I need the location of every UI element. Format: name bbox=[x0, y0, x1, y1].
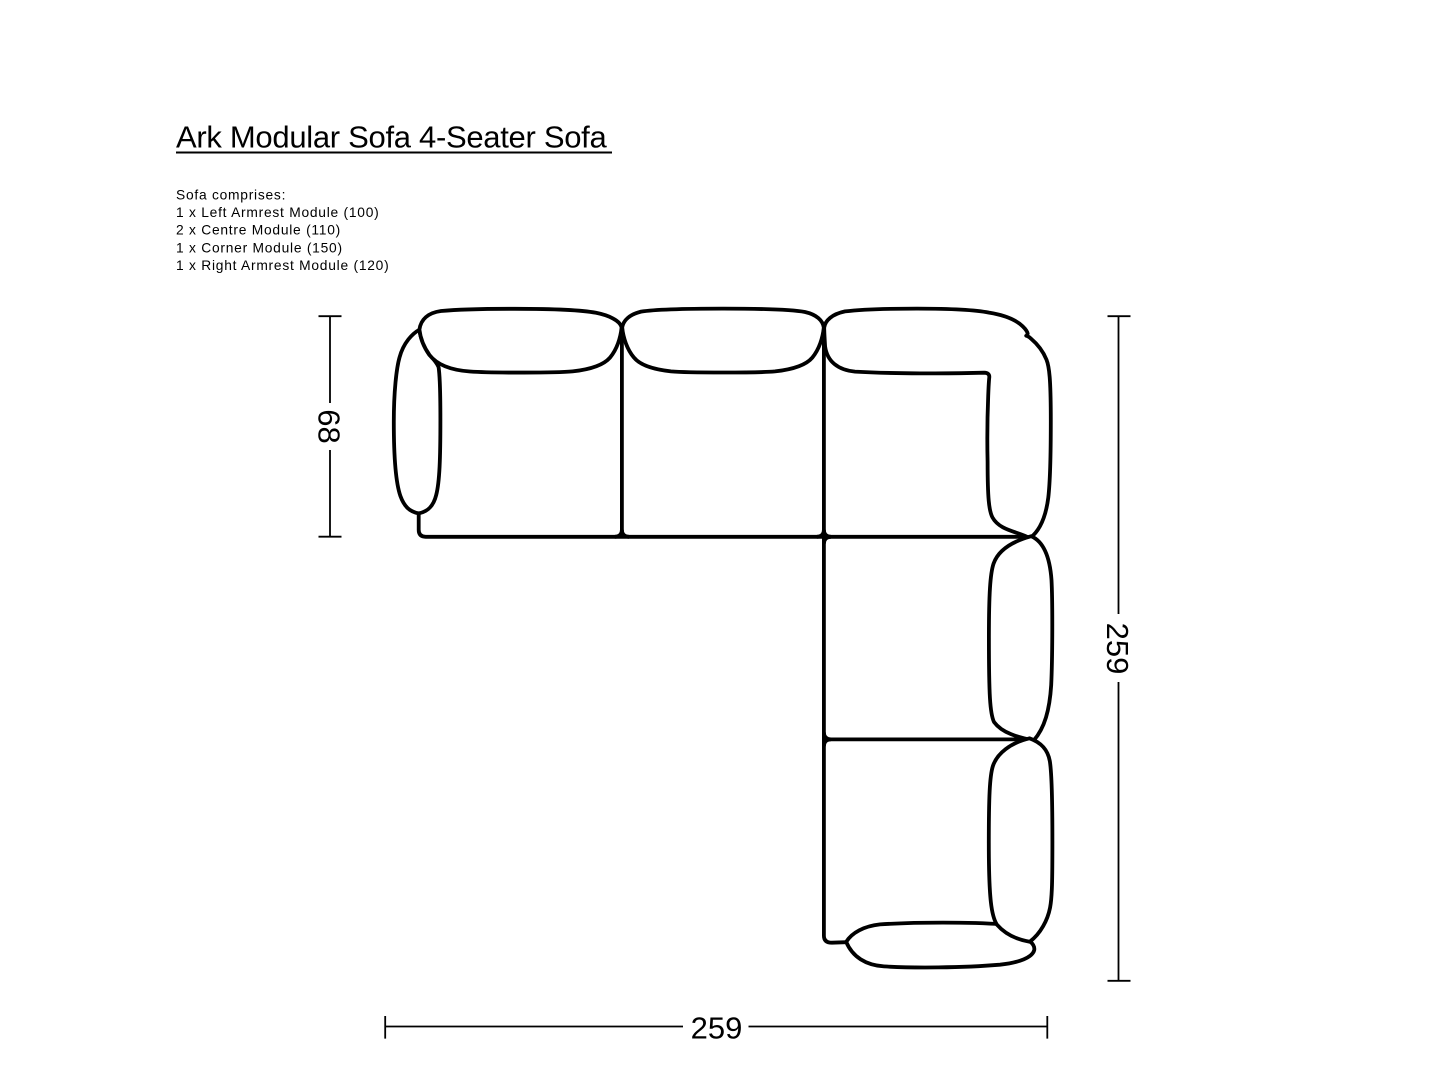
svg-text:1 x Corner Module (150): 1 x Corner Module (150) bbox=[176, 240, 343, 255]
svg-text:259: 259 bbox=[1100, 623, 1135, 675]
svg-text:1 x Left Armrest Module (100): 1 x Left Armrest Module (100) bbox=[176, 205, 380, 220]
svg-text:1 x Right Armrest Module (120): 1 x Right Armrest Module (120) bbox=[176, 258, 389, 273]
svg-text:Sofa comprises:: Sofa comprises: bbox=[176, 187, 286, 202]
svg-text:2 x Centre Module (110): 2 x Centre Module (110) bbox=[176, 223, 341, 238]
svg-text:259: 259 bbox=[691, 1011, 743, 1046]
svg-text:68: 68 bbox=[312, 409, 347, 443]
svg-text:Ark Modular Sofa 4-Seater Sofa: Ark Modular Sofa 4-Seater Sofa bbox=[176, 120, 607, 155]
